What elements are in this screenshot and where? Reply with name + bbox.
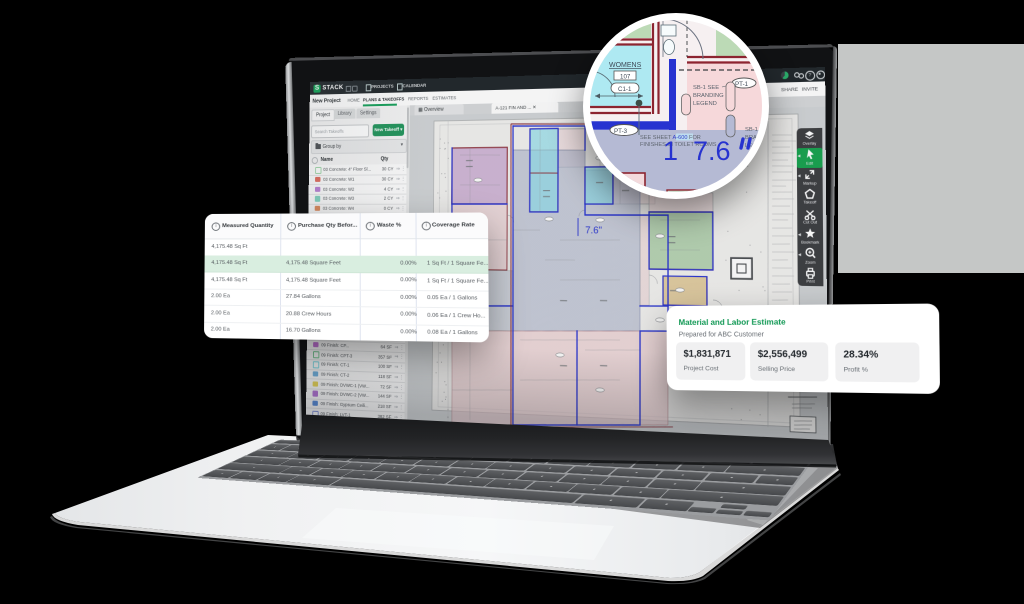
svg-text:LEGEND: LEGEND — [693, 101, 717, 107]
svg-text:WOMENS: WOMENS — [609, 62, 642, 69]
svg-text:SB-1 SEE: SB-1 SEE — [693, 85, 719, 91]
svg-text:PT-1: PT-1 — [735, 81, 749, 88]
svg-text:BRAN: BRAN — [745, 135, 761, 141]
svg-text:1: 1 — [663, 136, 678, 166]
svg-text:C1-1: C1-1 — [618, 86, 632, 93]
svg-text:7.6: 7.6 — [693, 136, 731, 166]
svg-text:BRANDING: BRANDING — [693, 93, 724, 99]
svg-text:PT-3: PT-3 — [614, 128, 628, 135]
svg-text:107: 107 — [620, 74, 631, 81]
svg-text:SB-1 S: SB-1 S — [745, 127, 762, 133]
